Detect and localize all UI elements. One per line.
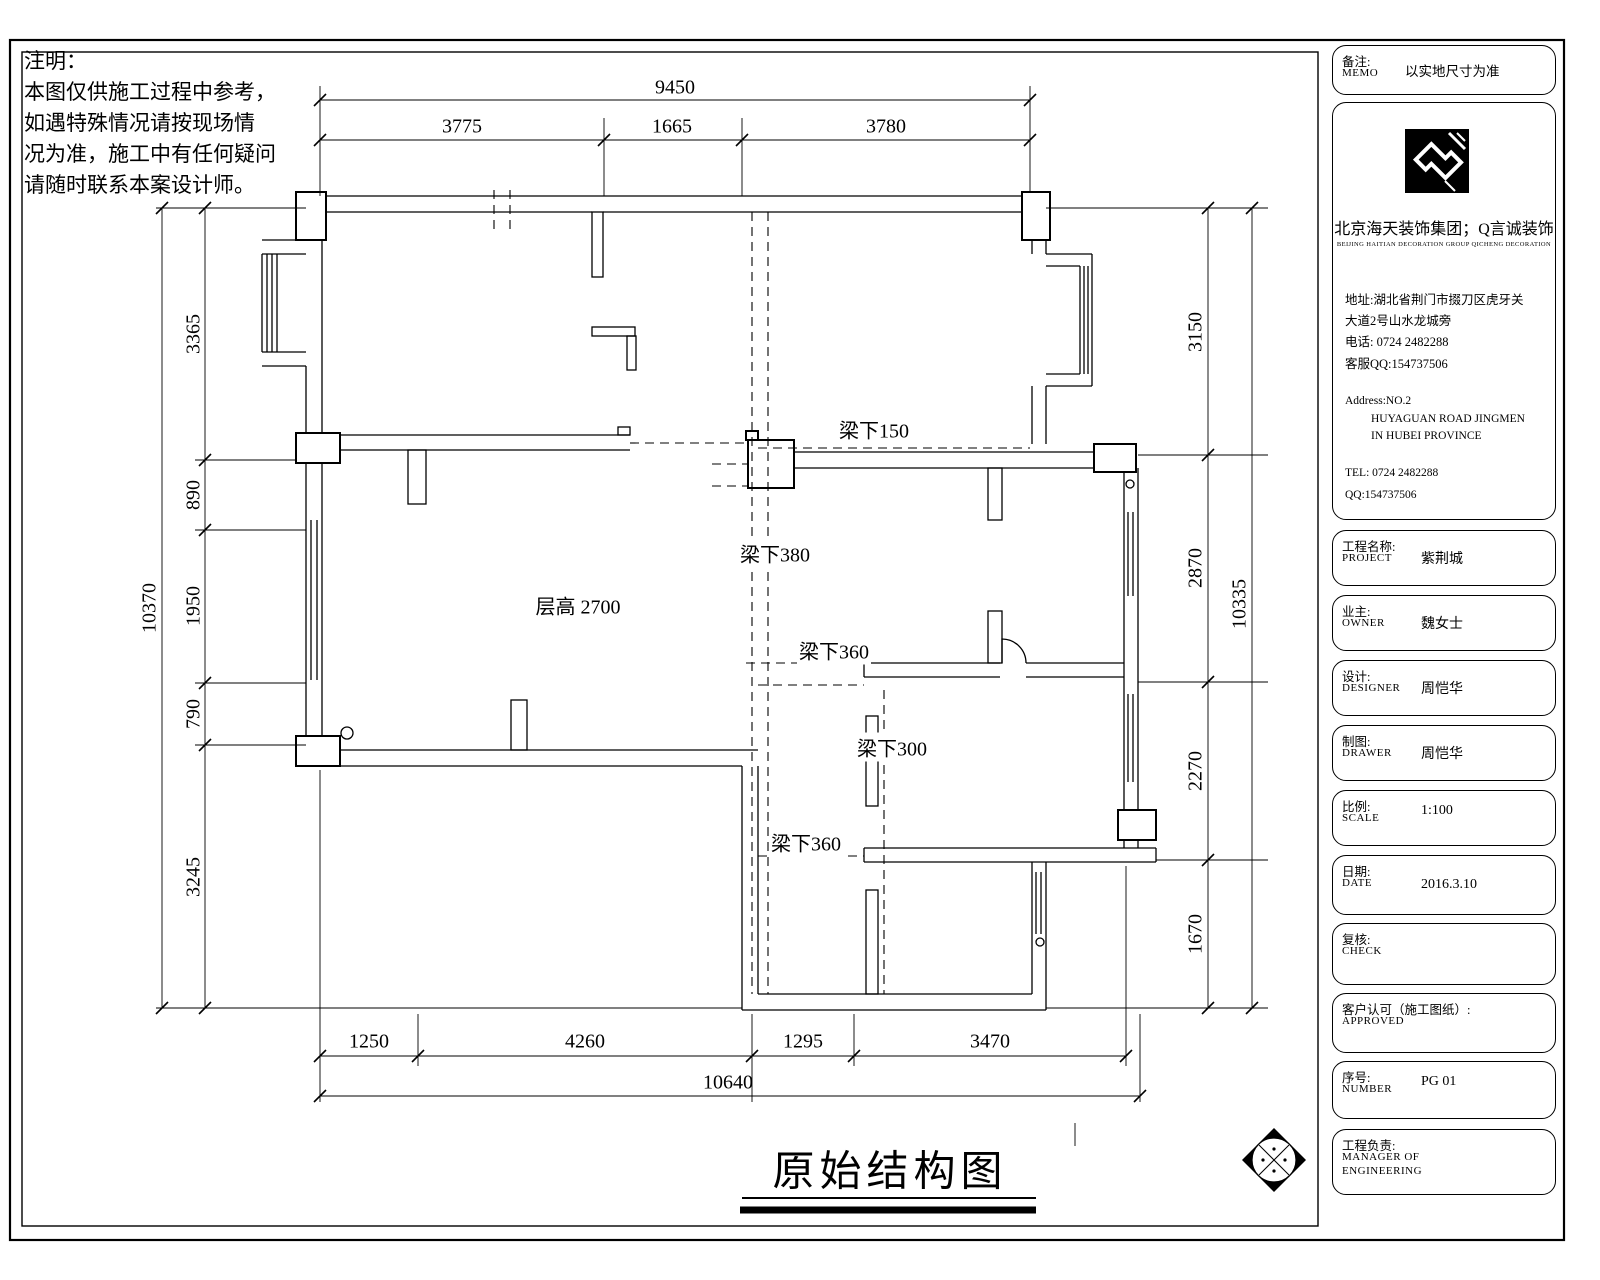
dim-top-seg: 1665 (652, 116, 692, 139)
titleblock-company-cell: 北京海天装饰集团；Q言诚装饰 BEIJING HAITIAN DECORATIO… (1332, 102, 1556, 520)
project-label-en: PROJECT (1342, 552, 1392, 564)
manager-label-en: MANAGER OF (1342, 1151, 1419, 1163)
scale-value: 1:100 (1421, 803, 1453, 819)
beam-label-150: 梁下150 (837, 415, 911, 444)
approved-label-en: APPROVED (1342, 1015, 1404, 1027)
floor-height-label: 层高 2700 (534, 591, 623, 620)
titleblock-check-cell: 复核: CHECK (1332, 923, 1556, 985)
dim-right-seg: 3150 (1185, 312, 1208, 352)
titleblock-designer-cell: 设计: DESIGNER 周恺华 (1332, 660, 1556, 716)
dim-right-total: 10335 (1229, 579, 1252, 629)
scale-label-en: SCALE (1342, 812, 1379, 824)
check-label-en: CHECK (1342, 945, 1382, 957)
notes-line: 本图仅供施工过程中参考， (24, 77, 276, 108)
beam-label-300: 梁下300 (855, 733, 929, 762)
dim-bottom-seg: 1250 (349, 1031, 389, 1054)
company-address-en-2: HUYAGUAN ROAD JINGMEN (1371, 413, 1525, 425)
compass-diamond-icon (1240, 1126, 1308, 1194)
company-address-en-1: Address:NO.2 (1345, 395, 1411, 407)
dim-top-seg: 3780 (866, 116, 906, 139)
owner-value: 魏女士 (1421, 613, 1463, 633)
notes-line: 况为准，施工中有任何疑问 (24, 139, 276, 170)
dim-left-seg: 3245 (183, 857, 206, 897)
beam-label-360-low: 梁下360 (769, 828, 843, 857)
company-tel-cn: 电话: 0724 2482288 (1345, 331, 1448, 350)
dimension-lines (156, 86, 1268, 1146)
notes-block: 注明： 本图仅供施工过程中参考， 如遇特殊情况请按现场情 况为准，施工中有任何疑… (24, 46, 276, 201)
owner-label-en: OWNER (1342, 617, 1385, 629)
dimension-ticks (156, 94, 1258, 1102)
project-value: 紫荆城 (1421, 548, 1463, 568)
manager-label-en2: ENGINEERING (1342, 1165, 1422, 1177)
dim-left-seg: 3365 (183, 314, 206, 354)
titleblock-drawer-cell: 制图: DRAWER 周恺华 (1332, 725, 1556, 781)
company-address-1: 地址:湖北省荆门市掇刀区虎牙关 (1345, 289, 1523, 308)
company-qq-cn: 客服QQ:154737506 (1345, 353, 1448, 372)
dim-right-seg: 2870 (1185, 548, 1208, 588)
drawer-value: 周恺华 (1421, 743, 1463, 763)
number-label-en: NUMBER (1342, 1083, 1392, 1095)
dim-left-seg: 1950 (183, 586, 206, 626)
date-label-en: DATE (1342, 877, 1372, 889)
dim-top-total: 9450 (655, 77, 695, 100)
titleblock-manager-cell: 工程负责: MANAGER OF ENGINEERING (1332, 1129, 1556, 1195)
titleblock-date-cell: 日期: DATE 2016.3.10 (1332, 855, 1556, 915)
designer-value: 周恺华 (1421, 678, 1463, 698)
titleblock-scale-cell: 比例: SCALE 1:100 (1332, 790, 1556, 846)
dim-bottom-seg: 4260 (565, 1031, 605, 1054)
dim-right-seg: 1670 (1185, 914, 1208, 954)
memo-value: 以实地尺寸为准 (1405, 60, 1500, 80)
dim-left-total: 10370 (139, 583, 162, 633)
notes-line: 如遇特殊情况请按现场情 (24, 108, 276, 139)
designer-label-en: DESIGNER (1342, 682, 1400, 694)
dim-left-seg: 890 (183, 480, 206, 510)
dim-bottom-seg: 1295 (783, 1031, 823, 1054)
titleblock-project-cell: 工程名称: PROJECT 紫荆城 (1332, 530, 1556, 586)
titleblock-owner-cell: 业主: OWNER 魏女士 (1332, 595, 1556, 651)
dim-top-seg: 3775 (442, 116, 482, 139)
beam-label-360-mid: 梁下360 (797, 636, 871, 665)
date-value: 2016.3.10 (1421, 877, 1477, 893)
dim-left-seg: 790 (183, 699, 206, 729)
wall-lines (262, 196, 1156, 1010)
company-address-en-3: IN HUBEI PROVINCE (1371, 430, 1482, 442)
dim-right-seg: 2270 (1185, 751, 1208, 791)
company-name: 北京海天装饰集团；Q言诚装饰 (1333, 215, 1555, 239)
titleblock-approved-cell: 客户认可（施工图纸）: APPROVED (1332, 993, 1556, 1053)
titleblock-memo-cell: 备注: MEMO 以实地尺寸为准 (1332, 45, 1556, 95)
company-address-2: 大道2号山水龙城旁 (1345, 310, 1451, 329)
company-tel-en: TEL: 0724 2482288 (1345, 467, 1438, 479)
titleblock-number-cell: 序号: NUMBER PG 01 (1332, 1061, 1556, 1119)
title-underline (740, 1198, 1036, 1210)
number-value: PG 01 (1421, 1074, 1456, 1090)
drawer-label-en: DRAWER (1342, 747, 1392, 759)
outer-border (10, 40, 1564, 1240)
notes-line: 请随时联系本案设计师。 (24, 170, 276, 201)
company-qq-en: QQ:154737506 (1345, 489, 1417, 501)
drawing-sheet: 注明： 本图仅供施工过程中参考， 如遇特殊情况请按现场情 况为准，施工中有任何疑… (0, 0, 1600, 1280)
memo-label-en: MEMO (1342, 67, 1378, 79)
drawing-title: 原始结构图 (772, 1138, 1007, 1199)
notes-title: 注明： (24, 46, 276, 77)
company-name-en: BEIJING HAITIAN DECORATION GROUP QICHENG… (1333, 241, 1555, 248)
beam-label-380: 梁下380 (738, 539, 812, 568)
dim-bottom-seg: 3470 (970, 1031, 1010, 1054)
column-blocks (296, 192, 1156, 840)
company-logo-icon (1405, 129, 1469, 193)
dim-bottom-total: 10640 (703, 1072, 753, 1095)
